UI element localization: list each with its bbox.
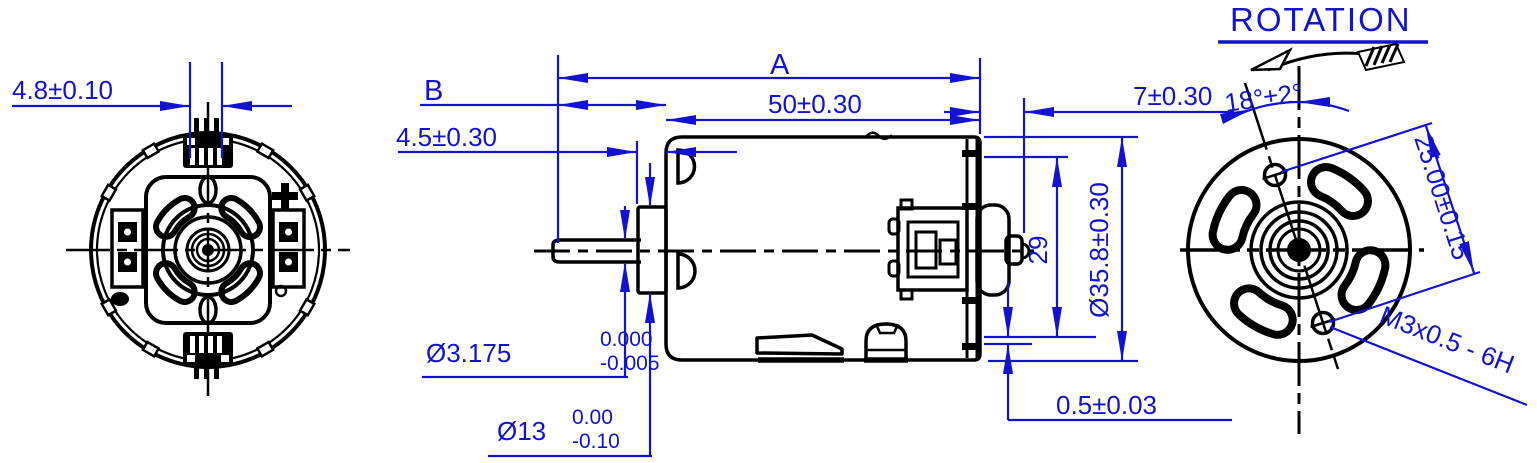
dim-terminal-width-label: 4.8±0.10 [12, 75, 113, 105]
front-shaft-end [1287, 238, 1311, 262]
side-view: A B 50±0.30 7±0.30 4.5±0.30 [396, 49, 1234, 456]
dim-thread-callout: M3x0.5 - 6H [1330, 300, 1527, 405]
dim-shaft-extension: B [420, 75, 666, 110]
terminal-bottom [183, 332, 233, 379]
solder-blob [111, 292, 129, 306]
bearing-boss [163, 205, 253, 295]
rear-endcap-view: 4.8±0.10 [12, 62, 350, 396]
bottom-dome-bump [866, 324, 906, 359]
dim-body-length: 50±0.30 [666, 89, 980, 125]
dim-shaft-dia-tol-upper: 0.000 [600, 328, 653, 351]
dim-endcap-step-label: 0.5±0.03 [1056, 390, 1157, 420]
dim-thread-label: M3x0.5 - 6H [1376, 300, 1519, 380]
dim-bushing-length: 4.5±0.30 [396, 122, 737, 204]
dim-bushing-length-label: 4.5±0.30 [396, 122, 497, 152]
dim-overall-length-label: A [770, 49, 790, 81]
bottom-wedge-tab [757, 335, 842, 354]
brush-box-right [273, 210, 304, 287]
plus-polarity-mark [272, 183, 298, 209]
dim-bushing-dia-label: Ø13 [497, 416, 546, 446]
drawing-canvas: 4.8±0.10 [0, 0, 1537, 463]
rotation-arrow-tail [1358, 44, 1404, 70]
dim-body-diameter-label: Ø35.8±0.30 [1084, 182, 1114, 318]
dim-shaft-extension-label: B [424, 75, 443, 107]
motor-dimension-drawing: 4.8±0.10 [0, 0, 1537, 463]
dim-bushing-dia-tol-lower: -0.10 [572, 430, 620, 453]
dim-shaft-dia-label: Ø3.175 [426, 338, 511, 368]
dim-body-length-label: 50±0.30 [768, 89, 862, 119]
motor-can-outline [666, 137, 980, 360]
dim-bushing-dia-tol-upper: 0.00 [572, 406, 613, 429]
rotation-label: ROTATION [1230, 1, 1412, 38]
rotation-arrow-head [1251, 50, 1290, 70]
dim-bushing-diameter: Ø13 0.00 -0.10 [488, 163, 655, 456]
rotation-callout: ROTATION [1218, 1, 1428, 70]
dim-endbell-length-label: 7±0.30 [1133, 81, 1212, 111]
dim-brushplate: 29 [984, 157, 1096, 337]
front-view: ROTATION 18°±2° 25.00±0.15 [1180, 1, 1527, 434]
brush-box-left [112, 210, 143, 287]
dim-hole-angle: 18°±2° [1220, 77, 1349, 124]
face-vent-bottom [678, 254, 695, 288]
shaft-end [202, 244, 214, 256]
dim-hole-angle-label: 18°±2° [1223, 77, 1305, 118]
dim-brushplate-label: 29 [1023, 236, 1053, 265]
dim-shaft-diameter: Ø3.175 0.000 -0.005 [422, 206, 660, 377]
dim-hole-spacing-label: 25.00±0.15 [1408, 131, 1477, 264]
